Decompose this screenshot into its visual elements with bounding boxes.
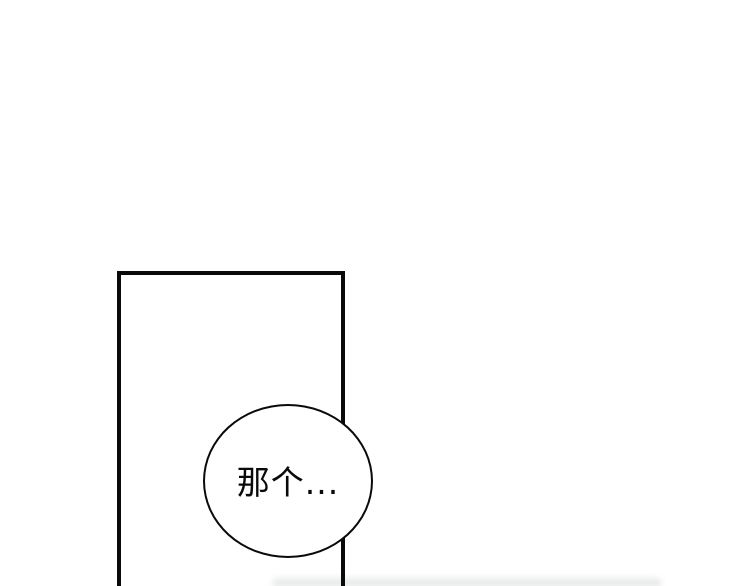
comic-page: 那个... bbox=[0, 0, 750, 586]
speech-bubble: 那个... bbox=[203, 404, 373, 558]
speech-bubble-text: 那个... bbox=[237, 466, 339, 499]
